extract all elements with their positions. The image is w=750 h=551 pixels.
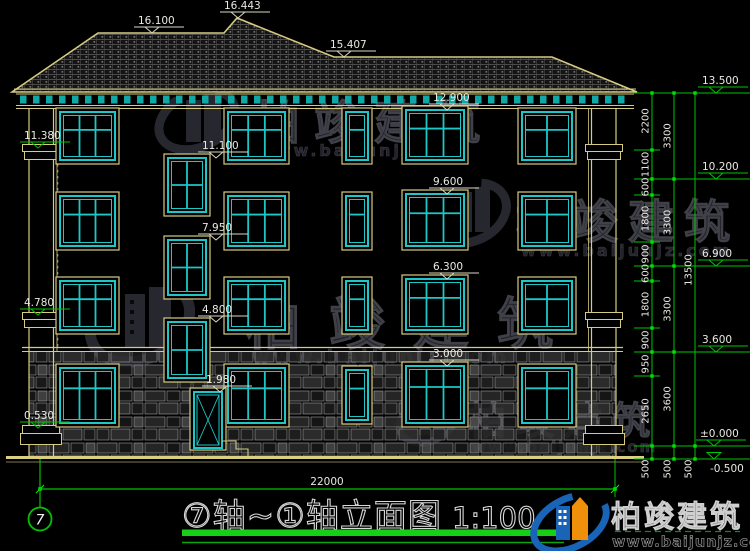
dentil-icon xyxy=(150,96,157,104)
elevation-value: 9.600 xyxy=(433,176,463,188)
watermark-building-icon xyxy=(186,100,201,142)
dimension-label: 3300 xyxy=(663,296,674,321)
overall-width-dimension: 22000 xyxy=(310,476,343,488)
dentil-icon xyxy=(254,96,261,104)
dentil-icon xyxy=(176,96,183,104)
dentil-icon xyxy=(124,96,131,104)
elevation-value: 6.300 xyxy=(433,261,463,273)
dentil-icon xyxy=(501,96,508,104)
dimension-label: 600 xyxy=(641,177,652,196)
dentil-icon xyxy=(527,96,534,104)
footer-logo-brand: 柏竣建筑 xyxy=(611,500,743,535)
window xyxy=(224,277,289,334)
dentil-icon xyxy=(85,96,92,104)
elevation-value: 3.600 xyxy=(702,334,732,346)
elevation-value: 11.100 xyxy=(202,140,239,152)
window xyxy=(56,277,119,334)
dimension-label: 3300 xyxy=(663,123,674,148)
dentil-icon xyxy=(46,96,53,104)
footer-logo-url: www.baijunjz.com xyxy=(612,535,750,551)
window xyxy=(56,192,119,250)
dimension-label: 2200 xyxy=(641,108,652,133)
window xyxy=(342,108,372,164)
dentil-icon xyxy=(397,96,404,104)
window xyxy=(342,192,372,250)
view-title: ⑦轴~①轴立面图 xyxy=(182,496,442,535)
dentil-icon xyxy=(579,96,586,104)
dentil-icon xyxy=(332,96,339,104)
elevation-value: 13.500 xyxy=(702,75,739,87)
dentil-icon xyxy=(371,96,378,104)
dentil-icon xyxy=(475,96,482,104)
dentil-icon xyxy=(566,96,573,104)
dentil-icon xyxy=(618,96,625,104)
window xyxy=(518,108,576,164)
window xyxy=(402,362,468,427)
elevation-value: 16.100 xyxy=(138,15,175,27)
dimension-label: 1100 xyxy=(641,152,652,177)
window xyxy=(518,277,576,334)
dimension-label: 600 xyxy=(641,264,652,283)
dentil-icon xyxy=(293,96,300,104)
dimension-label: 2650 xyxy=(641,398,652,423)
window xyxy=(402,190,468,250)
elevation-value: 0.530 xyxy=(24,410,54,422)
dentil-icon xyxy=(163,96,170,104)
dentil-icon xyxy=(215,96,222,104)
elevation-value: 10.200 xyxy=(702,161,739,173)
dentil-icon xyxy=(59,96,66,104)
dimension-label: 500 xyxy=(684,459,695,478)
window xyxy=(342,277,372,334)
dentil-icon xyxy=(306,96,313,104)
dimension-label: 950 xyxy=(641,354,652,373)
dimension-label: 3600 xyxy=(663,386,674,411)
elevation-value: -0.500 xyxy=(710,463,744,475)
dentil-icon xyxy=(410,96,417,104)
dentil-icon xyxy=(605,96,612,104)
dentil-icon xyxy=(384,96,391,104)
elevation-drawing: 柏竣建筑 www.baijunjz.com 柏竣建筑 www.baijunjz.… xyxy=(0,0,750,551)
dentil-icon xyxy=(267,96,274,104)
dimension-label: 900 xyxy=(641,330,652,349)
window xyxy=(164,318,210,382)
dentil-icon xyxy=(280,96,287,104)
window xyxy=(342,366,372,424)
elevation-value: 11.380 xyxy=(24,130,61,142)
window xyxy=(56,364,119,427)
dimension-label: 13500 xyxy=(684,254,695,286)
dentil-icon xyxy=(111,96,118,104)
elevation-value: ±0.000 xyxy=(700,428,739,440)
watermark-building-icon xyxy=(475,187,490,232)
dimension-label: 1800 xyxy=(641,206,652,231)
window xyxy=(164,236,210,299)
dentil-icon xyxy=(228,96,235,104)
window xyxy=(224,108,289,164)
logo-building-blue-icon xyxy=(556,506,570,540)
elevation-value: 12.900 xyxy=(433,92,470,104)
title-block: ⑦轴~①轴立面图 1:100 xyxy=(182,496,564,543)
elevation-value: 4.800 xyxy=(202,304,232,316)
dentil-icon xyxy=(189,96,196,104)
window xyxy=(402,106,468,164)
watermark-building-icon xyxy=(125,294,145,348)
title-underline xyxy=(182,530,564,537)
dentil-icon xyxy=(98,96,105,104)
elevation-value: 16.443 xyxy=(224,0,261,12)
dentil-icon xyxy=(72,96,79,104)
dentil-icon xyxy=(319,96,326,104)
dimension-label: 1800 xyxy=(641,292,652,317)
dentil-icon xyxy=(514,96,521,104)
dentil-icon xyxy=(488,96,495,104)
dimension-label: 900 xyxy=(641,244,652,263)
dentil-icon xyxy=(345,96,352,104)
logo-building-orange-icon xyxy=(572,497,588,540)
elevation-value: 15.407 xyxy=(330,39,367,51)
elevation-value: 1.980 xyxy=(206,374,236,386)
dentil-icon xyxy=(592,96,599,104)
window xyxy=(56,108,119,164)
dimension-label: 500 xyxy=(663,459,674,478)
dentil-icon xyxy=(20,96,27,104)
dentil-icon xyxy=(553,96,560,104)
dentil-icon xyxy=(137,96,144,104)
elevation-value: 7.950 xyxy=(202,222,232,234)
dentil-icon xyxy=(202,96,209,104)
dentil-icon xyxy=(33,96,40,104)
window xyxy=(518,192,576,250)
elevation-value: 3.000 xyxy=(433,348,463,360)
window xyxy=(402,275,468,334)
window xyxy=(518,364,576,427)
window xyxy=(224,192,289,250)
dentil-icon xyxy=(241,96,248,104)
dentil-icon xyxy=(423,96,430,104)
elevation-value: 6.900 xyxy=(702,248,732,260)
axis-number: 7 xyxy=(36,513,45,529)
dentil-icon xyxy=(358,96,365,104)
elevation-value: 4.780 xyxy=(24,297,54,309)
dimension-label: 500 xyxy=(641,459,652,478)
window xyxy=(164,154,210,216)
dentil-icon xyxy=(540,96,547,104)
dimension-label: 3300 xyxy=(663,210,674,235)
